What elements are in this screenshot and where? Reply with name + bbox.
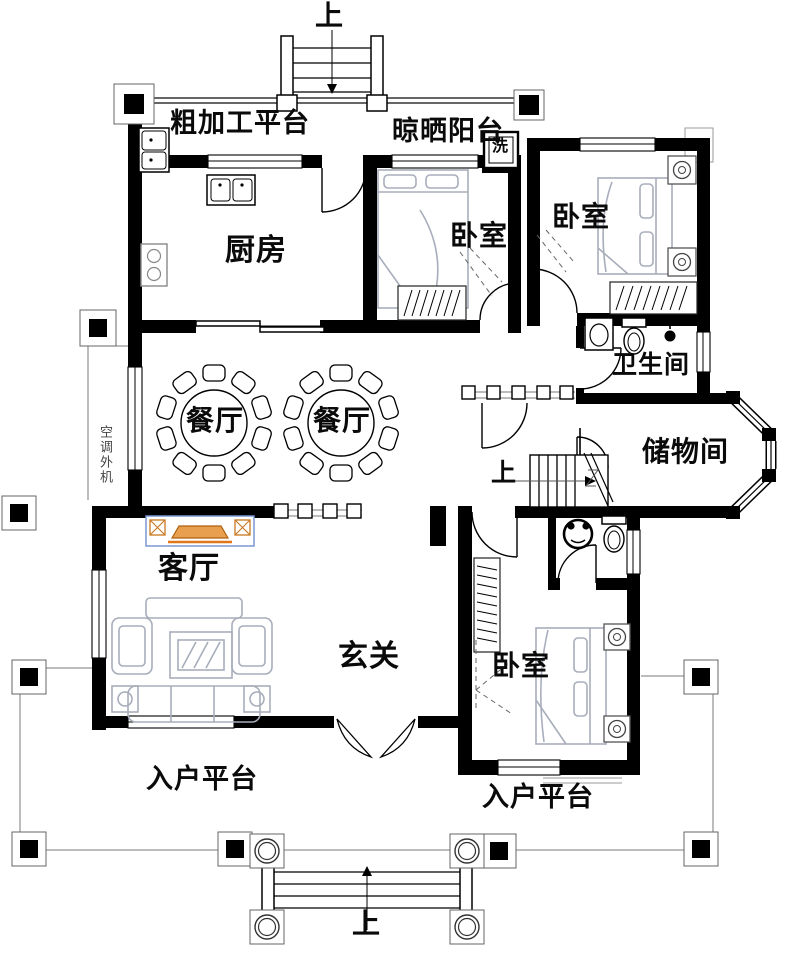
sofa-set (112, 598, 272, 722)
stairs-middle-label: 上 (491, 461, 517, 486)
ac-outdoor-unit-label: 空调外机 (96, 425, 115, 485)
stairs-center (502, 428, 613, 507)
washer-label: 洗 (492, 139, 508, 155)
bed-top-right (598, 156, 696, 276)
balcony-sink (139, 128, 169, 172)
room-label-bedroom-top-middle: 卧室 (450, 222, 508, 250)
room-label-bathroom: 卫生间 (612, 353, 690, 378)
sliding-door (196, 321, 324, 332)
room-label-bedroom-bottom: 卧室 (492, 652, 550, 680)
room-label-kitchen: 厨房 (225, 236, 287, 266)
bathroom-lower-fixtures (564, 516, 626, 552)
room-label-bedroom-top-right: 卧室 (552, 203, 610, 231)
room-label-living: 客厅 (158, 554, 220, 584)
room-label-entrance-hall: 玄关 (338, 642, 400, 672)
kitchen-stove (141, 244, 167, 286)
label-entry-platform-left: 入户平台 (146, 766, 258, 793)
kitchen-sink (207, 175, 255, 205)
room-label-storage: 储物间 (642, 438, 729, 466)
tv-stand (146, 516, 254, 546)
room-label-drying-balcony: 晾晒阳台 (392, 118, 504, 145)
floor-plan-canvas: 上 粗加工平台 晾晒阳台 洗 厨房 卧室 卧室 卫生间 餐厅 餐厅 储物间 上 … (0, 0, 789, 957)
label-entry-platform-right: 入户平台 (482, 784, 594, 811)
entry-double-door (337, 719, 415, 757)
stairs-top-label: 上 (315, 2, 344, 30)
room-label-dining-right: 餐厅 (313, 407, 371, 435)
stairs-bottom-label: 上 (352, 910, 381, 938)
bed-bottom (536, 624, 630, 744)
room-label-dining-left: 餐厅 (186, 407, 244, 435)
bay-window (726, 391, 776, 519)
room-label-rough-work-platform: 粗加工平台 (170, 110, 310, 137)
